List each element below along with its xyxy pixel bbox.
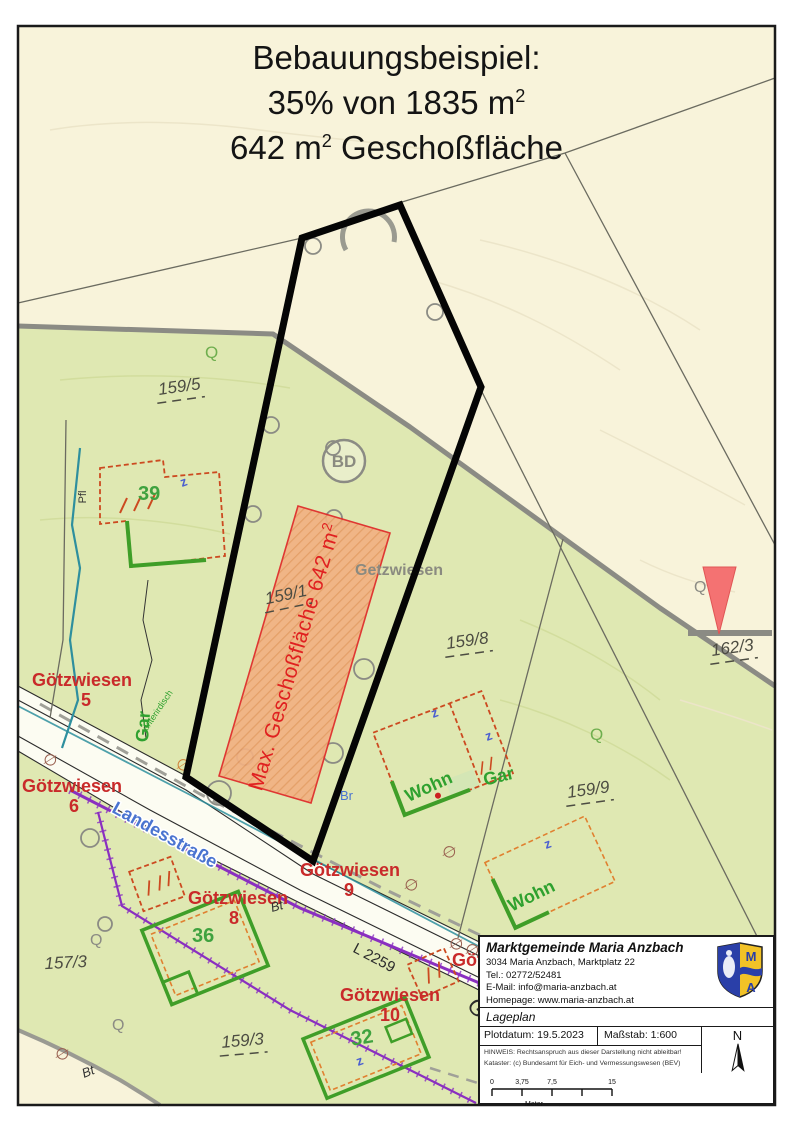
veg-symbol-q: Q [112, 1017, 124, 1034]
logo-letter-a: A [746, 980, 756, 995]
lageplan-page: ∅ ∅ ∅ ∅ ∅ ∅ ∅ Q z z z z z Getzwiesen BD [0, 0, 794, 1125]
parcel-label-157-3: 157/3 [44, 952, 88, 973]
house-number-36: 36 [192, 925, 214, 947]
municipality-logo: M A [714, 941, 766, 1004]
label-pfl: Pfl [77, 491, 89, 504]
addr-goetzwiesen-6-num: 6 [69, 796, 79, 816]
scalebar-icon: 0 3,75 7,5 15 Meter [484, 1075, 644, 1115]
north-label: N [733, 1028, 742, 1043]
north-arrow-cell: N [702, 1027, 773, 1073]
infobox-grid: Plotdatum: 19.5.2023 Maßstab: 1:600 N HI… [480, 1026, 773, 1073]
veg-symbol-q: Q [694, 579, 706, 596]
veg-symbol-q: Q [90, 932, 102, 949]
notes-cell: HINWEIS: Rechtsanspruch aus dieser Darst… [480, 1045, 702, 1073]
addr-goetzwiesen-5: Götzwiesen [32, 670, 132, 690]
addr-goetzwiesen-6: Götzwiesen [22, 776, 122, 796]
addr-goetzwiesen-10: Götzwiesen [340, 985, 440, 1005]
title-block: Bebauungsbeispiel: 35% von 1835 m2 642 m… [18, 36, 775, 171]
title-line-1: Bebauungsbeispiel: [18, 36, 775, 81]
addr-goetzwiesen-5-num: 5 [81, 690, 91, 710]
veg-symbol-q: Q [590, 725, 603, 744]
scale-cell: Maßstab: 1:600 [598, 1027, 702, 1045]
scalebar-area: 0 3,75 7,5 15 Meter [480, 1073, 773, 1119]
plotdate-cell: Plotdatum: 19.5.2023 [480, 1027, 598, 1045]
addr-goetzwiesen-8-num: 8 [229, 908, 239, 928]
title-line-3: 642 m2 Geschoßfläche [18, 126, 775, 171]
plan-info-box: Marktgemeinde Maria Anzbach 3034 Maria A… [478, 935, 775, 1105]
north-arrow-icon [725, 1043, 751, 1073]
scalebar-75: 7,5 [547, 1079, 557, 1086]
doc-type-label: Lageplan [480, 1007, 773, 1026]
scalebar-15: 15 [608, 1079, 616, 1086]
addr-goetzwiesen-9-num: 9 [344, 880, 354, 900]
ried-label-getzwiesen: Getzwiesen [355, 562, 443, 579]
addr-goetzwiesen-9: Götzwiesen [300, 860, 400, 880]
label-br: Br [340, 788, 354, 803]
bd-label: BD [332, 452, 357, 471]
house-number-32: 32 [349, 1025, 375, 1051]
note-hinweis: HINWEIS: Rechtsanspruch aus dieser Darst… [484, 1048, 697, 1059]
house-number-39: 39 [138, 483, 160, 505]
scalebar-375: 3,75 [515, 1079, 529, 1086]
logo-letter-m: M [746, 949, 757, 964]
bd-symbol: BD [323, 440, 365, 482]
scalebar-unit: Meter [525, 1101, 544, 1108]
scalebar-0: 0 [490, 1079, 494, 1086]
addr-goetzwiesen-10-num: 10 [380, 1005, 400, 1025]
infobox-header: Marktgemeinde Maria Anzbach 3034 Maria A… [480, 937, 773, 1007]
parcel-label-159-3: 159/3 [221, 1029, 266, 1052]
veg-symbol-q: Q [205, 343, 218, 362]
note-kataster: Kataster: (c) Bundesamt für Eich- und Ve… [484, 1059, 697, 1070]
title-line-2: 35% von 1835 m2 [18, 81, 775, 126]
